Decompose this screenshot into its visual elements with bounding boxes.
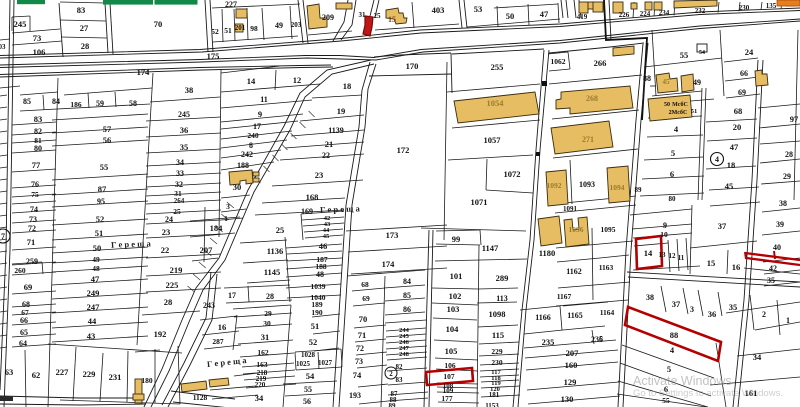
svg-text:55: 55 [100, 162, 109, 172]
svg-text:Г е р е щ а: Г е р е щ а [111, 238, 152, 249]
svg-text:174: 174 [137, 67, 151, 77]
svg-text:2: 2 [762, 310, 766, 319]
svg-text:Г е р е щ а: Г е р е щ а [320, 203, 361, 214]
svg-text:43: 43 [87, 331, 96, 341]
svg-text:2: 2 [389, 370, 393, 378]
svg-text:1092: 1092 [547, 181, 562, 190]
svg-text:71: 71 [358, 330, 367, 340]
svg-text:34: 34 [176, 158, 184, 167]
svg-text:18: 18 [727, 160, 736, 170]
svg-text:248: 248 [399, 351, 410, 358]
svg-text:219: 219 [170, 265, 183, 275]
svg-text:72: 72 [356, 344, 364, 353]
svg-text:1071: 1071 [471, 197, 488, 207]
svg-text:186: 186 [70, 100, 82, 109]
svg-text:169: 169 [301, 207, 313, 216]
svg-text:5: 5 [599, 334, 603, 343]
svg-text:177: 177 [441, 394, 453, 403]
svg-text:83: 83 [396, 376, 404, 384]
svg-text:66: 66 [20, 316, 28, 325]
svg-text:95: 95 [97, 197, 105, 206]
svg-text:101: 101 [450, 271, 463, 281]
svg-text:85: 85 [23, 97, 31, 106]
svg-text:66: 66 [740, 69, 748, 78]
svg-text:1136: 1136 [267, 246, 284, 256]
svg-text:37: 37 [672, 299, 681, 309]
svg-text:69: 69 [362, 294, 370, 303]
svg-text:1072: 1072 [504, 169, 521, 179]
svg-text:14: 14 [247, 76, 256, 86]
svg-text:55: 55 [680, 50, 689, 60]
svg-text:175: 175 [207, 51, 220, 61]
svg-text:12: 12 [293, 75, 302, 85]
svg-text:80: 80 [669, 195, 677, 203]
svg-text:4: 4 [715, 155, 719, 164]
svg-text:1164: 1164 [600, 308, 615, 317]
svg-text:31: 31 [359, 11, 367, 19]
svg-text:106: 106 [33, 47, 46, 57]
svg-text:Go to Settings to activate Win: Go to Settings to activate Windows. [633, 388, 783, 399]
svg-text:1167: 1167 [557, 292, 572, 301]
svg-text:180: 180 [141, 376, 153, 385]
svg-text:1165: 1165 [567, 311, 583, 320]
svg-text:97: 97 [790, 114, 799, 124]
svg-text:28: 28 [266, 292, 274, 301]
svg-text:38: 38 [646, 293, 654, 302]
svg-text:9: 9 [663, 221, 667, 230]
svg-text:7: 7 [1, 232, 5, 241]
svg-text:11: 11 [260, 95, 268, 104]
svg-text:229: 229 [491, 347, 503, 356]
svg-text:184: 184 [210, 223, 224, 233]
svg-text:28: 28 [164, 297, 173, 307]
svg-text:245: 245 [178, 110, 190, 119]
svg-text:34: 34 [753, 352, 762, 362]
svg-text:103: 103 [447, 304, 460, 314]
svg-text:21: 21 [325, 139, 334, 149]
svg-text:68: 68 [361, 280, 369, 289]
svg-text:259: 259 [26, 257, 38, 266]
svg-text:1: 1 [786, 316, 790, 325]
svg-text:57: 57 [103, 124, 112, 134]
svg-text:403: 403 [432, 5, 445, 15]
svg-text:193: 193 [349, 391, 361, 400]
svg-text:255: 255 [491, 62, 504, 72]
svg-text:50: 50 [506, 11, 515, 21]
svg-text:174: 174 [382, 259, 396, 269]
svg-text:75: 75 [31, 190, 39, 199]
svg-text:53: 53 [474, 4, 483, 14]
svg-text:69: 69 [24, 282, 33, 292]
svg-text:85: 85 [403, 291, 411, 300]
svg-text:1128: 1128 [193, 393, 208, 402]
svg-text:162: 162 [257, 348, 269, 357]
svg-text:260: 260 [14, 266, 26, 275]
svg-text:16: 16 [218, 322, 227, 332]
svg-text:88: 88 [643, 74, 651, 83]
svg-text:231: 231 [109, 372, 122, 382]
svg-text:170: 170 [406, 61, 419, 71]
svg-text:9: 9 [258, 109, 262, 119]
svg-text:34: 34 [255, 393, 264, 403]
svg-text:74: 74 [353, 370, 362, 380]
svg-text:1095: 1095 [601, 225, 616, 234]
svg-text:45: 45 [323, 233, 330, 240]
svg-text:28: 28 [81, 41, 90, 51]
svg-text:35: 35 [767, 276, 775, 285]
svg-text:51: 51 [224, 26, 232, 35]
svg-text:25: 25 [276, 225, 285, 235]
svg-text:48: 48 [92, 264, 100, 273]
svg-text:115: 115 [492, 330, 504, 340]
svg-text:55: 55 [304, 385, 312, 394]
svg-text:38: 38 [185, 85, 194, 95]
svg-text:419: 419 [577, 13, 588, 21]
svg-text:80: 80 [34, 144, 42, 153]
svg-text:84: 84 [403, 277, 411, 286]
svg-text:65: 65 [20, 328, 28, 337]
svg-text:73: 73 [355, 357, 363, 366]
svg-text:77: 77 [32, 160, 41, 170]
svg-text:30: 30 [263, 319, 271, 328]
svg-text:1147: 1147 [482, 243, 499, 253]
svg-text:МсбС: МсбС [672, 101, 688, 108]
svg-text:40: 40 [773, 243, 781, 252]
svg-text:1057: 1057 [484, 135, 502, 145]
svg-text:86: 86 [403, 305, 411, 314]
svg-text:20: 20 [733, 122, 742, 132]
svg-text:72: 72 [28, 224, 36, 233]
svg-text:27: 27 [80, 23, 89, 33]
svg-text:70: 70 [154, 19, 163, 29]
svg-text:71: 71 [27, 237, 36, 247]
svg-text:98: 98 [250, 24, 258, 33]
svg-text:47: 47 [540, 9, 549, 19]
svg-text:105: 105 [445, 346, 458, 356]
svg-text:287: 287 [212, 337, 224, 346]
svg-text:51: 51 [95, 228, 104, 238]
svg-text:247: 247 [87, 302, 101, 312]
svg-text:25: 25 [173, 207, 181, 216]
svg-text:33: 33 [176, 169, 184, 178]
svg-text:35: 35 [729, 302, 738, 312]
svg-text:104: 104 [446, 324, 460, 334]
svg-text:2МсбС: 2МсбС [669, 109, 688, 116]
svg-text:8: 8 [249, 141, 253, 150]
svg-text:56: 56 [303, 397, 311, 406]
svg-text:163: 163 [256, 360, 268, 369]
svg-text:47: 47 [730, 142, 739, 152]
svg-text:192: 192 [154, 329, 167, 339]
svg-text:113: 113 [496, 294, 508, 303]
svg-text:50: 50 [93, 243, 102, 253]
svg-text:39: 39 [776, 220, 784, 229]
svg-text:188: 188 [237, 161, 249, 170]
svg-text:243: 243 [203, 301, 215, 310]
svg-text:266: 266 [594, 58, 607, 68]
svg-text:46: 46 [319, 241, 328, 251]
svg-text:1162: 1162 [566, 267, 582, 276]
svg-text:14: 14 [644, 248, 653, 258]
svg-text:69: 69 [738, 88, 746, 97]
svg-text:48: 48 [316, 270, 324, 279]
svg-text:54: 54 [699, 50, 705, 56]
svg-text:1094: 1094 [610, 183, 625, 192]
svg-text:87: 87 [98, 184, 107, 194]
svg-text:52: 52 [211, 27, 219, 36]
svg-text:5: 5 [667, 364, 671, 374]
svg-text:58: 58 [129, 99, 137, 108]
svg-text:50: 50 [664, 102, 670, 108]
svg-text:130: 130 [561, 394, 574, 404]
svg-text:19: 19 [337, 106, 346, 116]
svg-text:38: 38 [779, 199, 787, 208]
svg-text:3: 3 [226, 202, 230, 211]
svg-text:1153: 1153 [485, 402, 499, 407]
svg-text:1096: 1096 [569, 225, 584, 234]
svg-text:268: 268 [586, 94, 598, 103]
svg-text:1093: 1093 [579, 180, 595, 189]
svg-text:30: 30 [233, 182, 242, 192]
svg-text:73: 73 [29, 215, 37, 224]
svg-text:70: 70 [359, 314, 368, 324]
svg-text:35: 35 [180, 142, 189, 152]
svg-text:83: 83 [77, 5, 86, 15]
svg-text:23: 23 [315, 170, 324, 180]
svg-text:181: 181 [489, 391, 500, 399]
svg-text:73: 73 [33, 33, 42, 43]
svg-text:99: 99 [452, 234, 461, 244]
svg-text:245: 245 [14, 19, 27, 29]
svg-text:63: 63 [5, 367, 14, 377]
svg-text:1062: 1062 [551, 57, 566, 66]
svg-text:1091: 1091 [563, 205, 578, 213]
svg-text:234: 234 [659, 9, 670, 17]
svg-text:54: 54 [306, 371, 315, 381]
svg-text:15: 15 [388, 15, 396, 24]
svg-text:16: 16 [732, 262, 741, 272]
svg-text:28: 28 [785, 150, 793, 159]
svg-text:230: 230 [739, 4, 750, 12]
svg-text:51: 51 [311, 321, 320, 331]
svg-text:22: 22 [322, 151, 330, 160]
svg-text:232: 232 [695, 7, 706, 15]
svg-text:24: 24 [165, 215, 173, 224]
svg-text:12: 12 [669, 252, 677, 260]
svg-text:107: 107 [443, 372, 455, 381]
svg-text:3: 3 [690, 305, 694, 314]
svg-text:45: 45 [725, 181, 734, 191]
svg-text:88: 88 [670, 330, 679, 340]
svg-text:1054: 1054 [487, 98, 505, 108]
svg-text:13: 13 [659, 251, 667, 259]
svg-text:227: 227 [56, 367, 70, 377]
svg-text:52: 52 [96, 214, 105, 224]
svg-text:82: 82 [34, 127, 42, 136]
svg-text:201: 201 [235, 24, 246, 32]
svg-text:56: 56 [103, 135, 112, 145]
svg-text:76: 76 [31, 180, 39, 189]
svg-text:59: 59 [96, 99, 104, 108]
svg-text:271: 271 [582, 135, 594, 144]
svg-text:84: 84 [52, 97, 60, 106]
svg-text:25: 25 [374, 12, 382, 20]
svg-text:82: 82 [396, 363, 404, 371]
svg-text:24: 24 [745, 47, 754, 57]
svg-text:03: 03 [0, 43, 6, 51]
svg-text:47: 47 [91, 274, 100, 284]
svg-text:1039: 1039 [311, 282, 326, 291]
svg-text:10: 10 [660, 230, 668, 239]
svg-text:68: 68 [734, 106, 743, 116]
svg-text:6: 6 [670, 169, 674, 179]
svg-text:83: 83 [34, 114, 43, 124]
svg-text:18: 18 [343, 81, 352, 91]
svg-text:249: 249 [87, 288, 100, 298]
svg-text:1145: 1145 [264, 267, 281, 277]
svg-text:209: 209 [322, 13, 334, 22]
svg-text:229: 229 [83, 369, 96, 379]
svg-text:17: 17 [253, 122, 261, 131]
svg-text:45: 45 [663, 78, 671, 86]
svg-text:23: 23 [162, 227, 171, 237]
svg-text:89: 89 [389, 402, 397, 407]
svg-text:242: 242 [241, 150, 253, 159]
svg-text:1163: 1163 [599, 263, 614, 272]
svg-text:5: 5 [671, 148, 675, 158]
svg-text:106: 106 [444, 361, 456, 370]
svg-text:207: 207 [566, 348, 580, 358]
svg-text:37: 37 [718, 221, 727, 231]
svg-text:207: 207 [200, 245, 214, 255]
svg-text:51: 51 [691, 108, 698, 115]
svg-text:227: 227 [225, 0, 237, 9]
svg-text:29: 29 [783, 172, 791, 181]
svg-text:31: 31 [261, 332, 270, 342]
svg-text:220: 220 [255, 381, 266, 389]
svg-text:1025: 1025 [296, 360, 311, 368]
svg-text:36: 36 [708, 309, 717, 319]
svg-text:1027: 1027 [318, 359, 333, 367]
svg-text:1098: 1098 [489, 309, 506, 319]
svg-text:44: 44 [88, 316, 97, 326]
svg-text:22: 22 [161, 245, 170, 255]
svg-text:289: 289 [496, 273, 509, 283]
svg-text:49: 49 [693, 78, 701, 87]
svg-text:172: 172 [397, 145, 410, 155]
svg-text:17: 17 [228, 291, 236, 300]
svg-text:235: 235 [542, 337, 555, 347]
svg-text:15: 15 [707, 258, 716, 268]
svg-text:64: 64 [19, 339, 27, 348]
svg-text:1139: 1139 [328, 126, 344, 135]
svg-text:89: 89 [635, 186, 643, 194]
svg-text:42: 42 [769, 264, 777, 273]
svg-text:226: 226 [619, 11, 630, 19]
svg-text:1166: 1166 [535, 313, 551, 322]
svg-text:32: 32 [175, 180, 183, 189]
svg-text:52: 52 [309, 337, 318, 347]
svg-text:1: 1 [224, 214, 228, 223]
svg-text:264: 264 [174, 197, 185, 205]
svg-text:102: 102 [449, 291, 462, 301]
svg-text:49: 49 [275, 21, 283, 30]
svg-text:1180: 1180 [539, 248, 556, 258]
svg-text:160: 160 [565, 360, 578, 370]
svg-text:29: 29 [264, 309, 272, 318]
svg-text:129: 129 [564, 377, 577, 387]
svg-text:62: 62 [32, 370, 41, 380]
svg-text:230: 230 [491, 358, 503, 367]
svg-text:224: 224 [640, 10, 651, 18]
svg-text:173: 173 [386, 230, 399, 240]
svg-text:225: 225 [166, 280, 179, 290]
svg-text:135: 135 [766, 2, 777, 10]
svg-text:Activate Windows: Activate Windows [633, 374, 732, 388]
svg-text:190: 190 [311, 308, 323, 317]
svg-text:74: 74 [30, 205, 38, 214]
svg-text:11: 11 [678, 254, 685, 262]
svg-text:1028: 1028 [301, 351, 316, 359]
svg-text:203: 203 [291, 21, 302, 29]
svg-text:49: 49 [92, 255, 100, 264]
svg-text:168: 168 [306, 192, 319, 202]
svg-text:36: 36 [180, 125, 189, 135]
svg-text:240: 240 [247, 131, 259, 140]
